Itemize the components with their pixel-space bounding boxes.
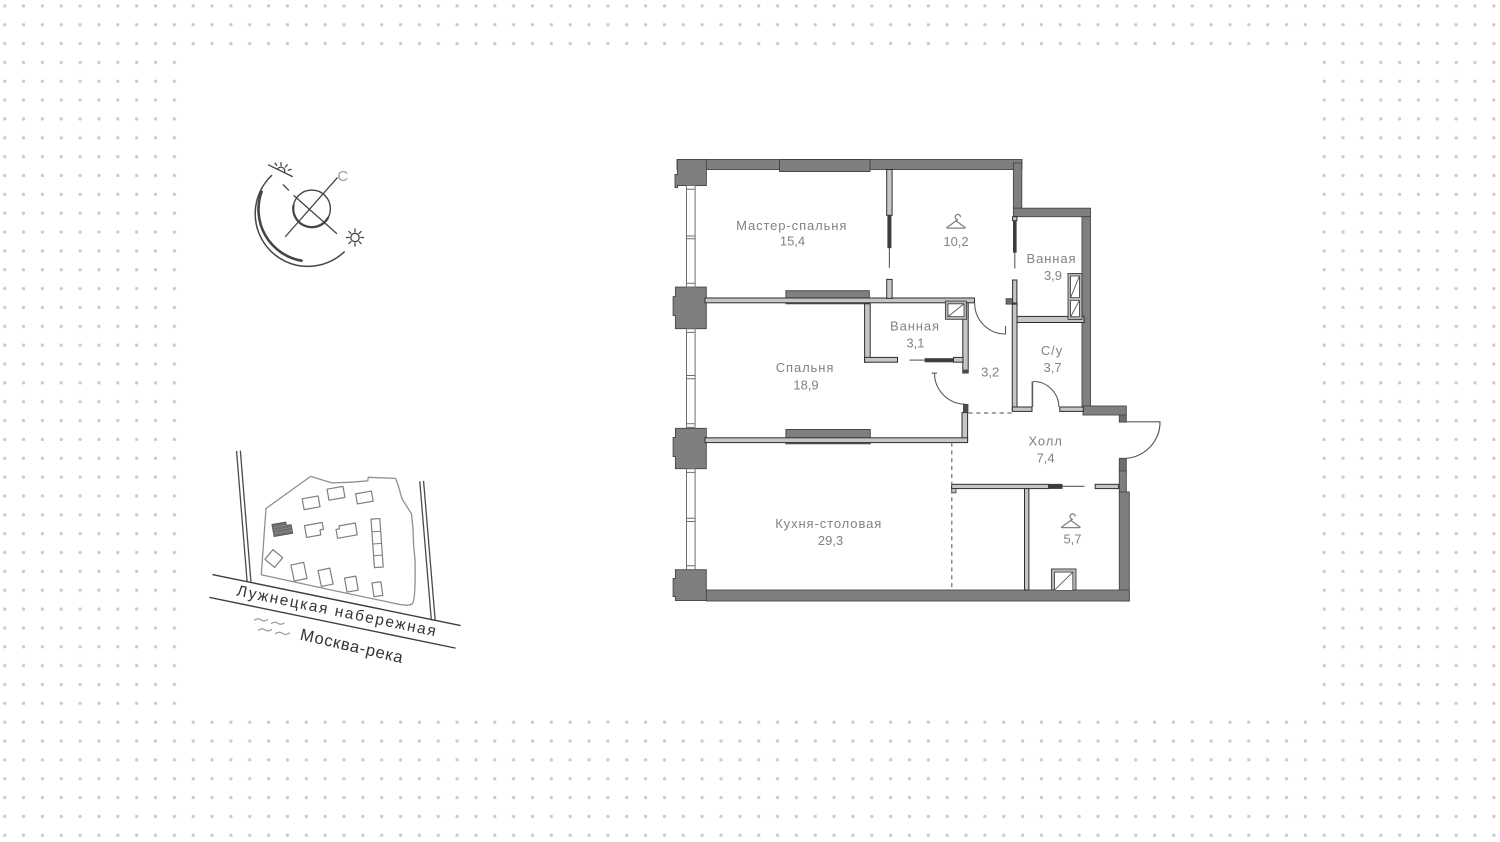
- svg-text:Ванная: Ванная: [1027, 251, 1077, 266]
- svg-text:C: C: [337, 168, 348, 185]
- svg-text:3,1: 3,1: [906, 336, 924, 351]
- svg-text:Ванная: Ванная: [890, 318, 940, 333]
- svg-text:5,7: 5,7: [1063, 532, 1081, 547]
- svg-text:С/у: С/у: [1041, 343, 1063, 358]
- svg-text:29,3: 29,3: [818, 533, 843, 548]
- svg-text:3,7: 3,7: [1044, 360, 1062, 375]
- svg-text:18,9: 18,9: [793, 378, 818, 393]
- svg-text:3,2: 3,2: [981, 365, 999, 380]
- svg-text:3,9: 3,9: [1044, 268, 1062, 283]
- svg-text:Холл: Холл: [1028, 434, 1062, 449]
- svg-text:10,2: 10,2: [943, 234, 968, 249]
- svg-text:Мастер-спальня: Мастер-спальня: [736, 218, 847, 233]
- svg-text:7,4: 7,4: [1037, 451, 1055, 466]
- svg-text:Кухня-столовая: Кухня-столовая: [775, 516, 882, 531]
- svg-text:Спальня: Спальня: [776, 360, 835, 375]
- svg-text:15,4: 15,4: [780, 234, 805, 249]
